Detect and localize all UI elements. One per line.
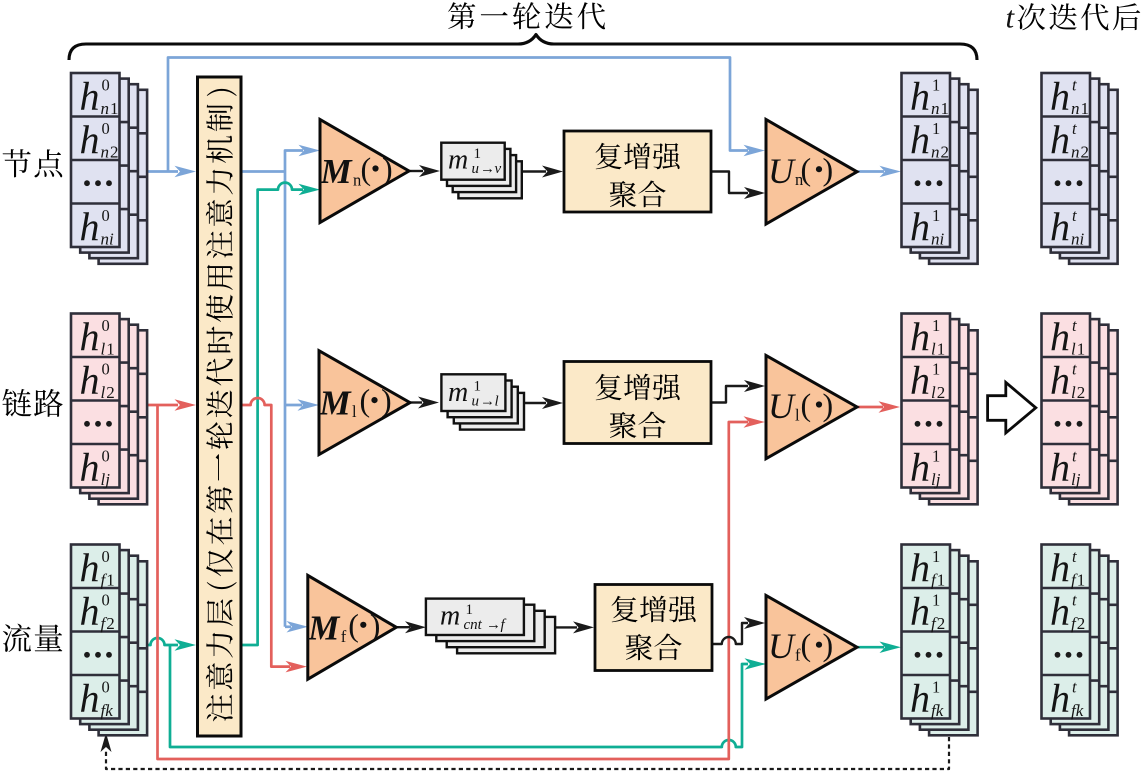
svg-text:t: t	[1072, 547, 1077, 566]
svg-text:m: m	[448, 377, 468, 408]
svg-text:): )	[381, 382, 392, 418]
svg-text:m: m	[440, 601, 460, 632]
svg-text:M: M	[319, 384, 353, 423]
svg-text:v: v	[495, 161, 502, 177]
svg-text:1: 1	[932, 206, 940, 225]
svg-text:f2: f2	[1071, 614, 1085, 633]
svg-text:1: 1	[932, 119, 940, 138]
svg-text:t: t	[1072, 591, 1077, 610]
svg-text:0: 0	[102, 447, 110, 466]
svg-text:l2: l2	[1071, 383, 1085, 402]
svg-text:U: U	[768, 151, 796, 191]
svg-text:fk: fk	[101, 701, 114, 720]
svg-text:h: h	[1050, 445, 1070, 490]
svg-text:1: 1	[932, 591, 940, 610]
svg-text:(: (	[360, 382, 371, 418]
svg-text:): )	[823, 387, 834, 423]
svg-text:h: h	[910, 74, 930, 119]
svg-text:U: U	[768, 626, 796, 666]
svg-text:t: t	[1072, 447, 1077, 466]
svg-text:→: →	[480, 161, 495, 177]
svg-text:n1: n1	[931, 99, 949, 118]
svg-text:h: h	[910, 676, 930, 721]
svg-text:1: 1	[474, 379, 482, 395]
svg-text:ni: ni	[931, 230, 945, 249]
svg-text:0: 0	[102, 678, 110, 697]
svg-text:1: 1	[932, 447, 940, 466]
svg-text:f1: f1	[931, 571, 945, 590]
svg-text:0: 0	[102, 360, 110, 379]
svg-text:1: 1	[466, 602, 474, 618]
svg-text:h: h	[1050, 74, 1070, 119]
svg-text:u: u	[472, 161, 480, 177]
svg-text:h: h	[80, 589, 100, 634]
svg-text:h: h	[1050, 676, 1070, 721]
svg-text:0: 0	[102, 547, 110, 566]
svg-text:M: M	[307, 608, 341, 647]
svg-text:1: 1	[932, 76, 940, 95]
svg-text:n2: n2	[1071, 143, 1089, 162]
svg-text:h: h	[910, 314, 930, 359]
svg-text:U: U	[768, 386, 796, 426]
svg-text:cnt: cnt	[464, 617, 483, 633]
svg-text:m: m	[448, 145, 468, 176]
svg-text:h: h	[910, 204, 930, 249]
svg-text:0: 0	[102, 76, 110, 95]
svg-text:): )	[823, 151, 834, 187]
svg-text:h: h	[1050, 117, 1070, 162]
svg-text:1: 1	[932, 547, 940, 566]
svg-text:1: 1	[932, 316, 940, 335]
svg-text:l1: l1	[101, 340, 115, 359]
svg-text:(: (	[348, 607, 359, 643]
svg-text:n2: n2	[101, 143, 119, 162]
svg-text:l2: l2	[931, 383, 945, 402]
svg-text:1: 1	[474, 146, 482, 162]
svg-text:(: (	[361, 151, 372, 187]
svg-text:n1: n1	[101, 99, 119, 118]
svg-text:h: h	[1050, 589, 1070, 634]
svg-text:): )	[382, 151, 393, 187]
svg-text:f2: f2	[931, 614, 945, 633]
svg-text:f: f	[341, 627, 347, 646]
svg-text:t: t	[1072, 119, 1077, 138]
svg-text:h: h	[910, 358, 930, 403]
svg-text:h: h	[1050, 358, 1070, 403]
svg-text:t: t	[1072, 678, 1077, 697]
svg-text:ni: ni	[101, 230, 115, 249]
svg-text:t: t	[1072, 76, 1077, 95]
svg-text:h: h	[80, 545, 100, 590]
svg-text:h: h	[910, 589, 930, 634]
svg-text:1: 1	[932, 360, 940, 379]
svg-text:l2: l2	[101, 383, 115, 402]
svg-text:(: (	[801, 151, 812, 187]
svg-text:M: M	[320, 152, 354, 191]
svg-text:h: h	[80, 445, 100, 490]
svg-text:t: t	[1072, 360, 1077, 379]
svg-text:t: t	[1072, 206, 1077, 225]
svg-text:h: h	[910, 445, 930, 490]
svg-text:l: l	[352, 402, 357, 421]
svg-text:ni: ni	[1071, 230, 1085, 249]
svg-text:t: t	[1072, 316, 1077, 335]
svg-text:h: h	[80, 117, 100, 162]
svg-text:): )	[823, 627, 834, 663]
svg-text:0: 0	[102, 591, 110, 610]
svg-text:1: 1	[932, 678, 940, 697]
svg-text:h: h	[1050, 204, 1070, 249]
svg-text:0: 0	[102, 119, 110, 138]
svg-text:(: (	[801, 387, 812, 423]
svg-text:h: h	[1050, 314, 1070, 359]
svg-text:f2: f2	[101, 614, 115, 633]
svg-text:0: 0	[102, 206, 110, 225]
svg-text:fk: fk	[931, 701, 944, 720]
svg-text:(: (	[801, 627, 812, 663]
svg-text:h: h	[80, 314, 100, 359]
svg-text:→: →	[480, 394, 495, 410]
svg-text:lj: lj	[101, 470, 111, 489]
svg-text:h: h	[80, 74, 100, 119]
svg-text:f1: f1	[1071, 571, 1085, 590]
svg-text:lj: lj	[931, 470, 941, 489]
svg-text:h: h	[1050, 545, 1070, 590]
svg-text:h: h	[910, 117, 930, 162]
svg-text:fk: fk	[1071, 701, 1084, 720]
svg-text:): )	[370, 607, 381, 643]
svg-text:n2: n2	[931, 143, 949, 162]
svg-text:0: 0	[102, 316, 110, 335]
svg-text:l: l	[495, 394, 499, 410]
svg-text:h: h	[80, 676, 100, 721]
svg-text:l1: l1	[931, 340, 945, 359]
svg-text:h: h	[910, 545, 930, 590]
svg-text:f1: f1	[101, 571, 115, 590]
svg-text:h: h	[80, 358, 100, 403]
svg-text:l1: l1	[1071, 340, 1085, 359]
svg-text:t: t	[1006, 0, 1016, 35]
svg-text:l: l	[795, 406, 800, 425]
svg-text:h: h	[80, 204, 100, 249]
svg-text:lj: lj	[1071, 470, 1081, 489]
svg-text:u: u	[472, 394, 480, 410]
svg-text:→: →	[486, 617, 501, 633]
svg-text:n1: n1	[1071, 99, 1089, 118]
